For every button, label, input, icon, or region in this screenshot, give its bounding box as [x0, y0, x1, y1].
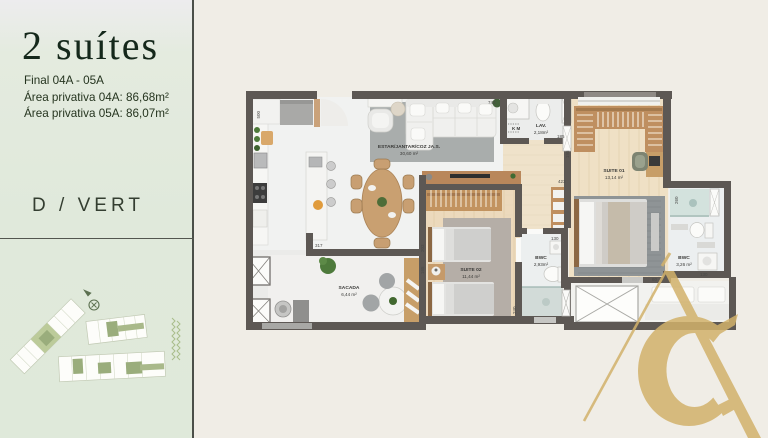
svg-text:2,18m²: 2,18m² [534, 130, 549, 135]
svg-text:11,44 m²: 11,44 m² [462, 274, 480, 279]
svg-text:60: 60 [652, 277, 658, 282]
svg-text:K M: K M [512, 126, 521, 131]
svg-text:SUITE 01: SUITE 01 [603, 168, 624, 174]
svg-text:2,93m²: 2,93m² [534, 262, 549, 267]
svg-text:165: 165 [420, 266, 425, 274]
svg-text:6,44 m²: 6,44 m² [341, 292, 357, 297]
svg-text:BWC: BWC [678, 255, 690, 261]
svg-text:130: 130 [700, 272, 708, 277]
svg-text:423: 423 [558, 179, 566, 184]
svg-text:317: 317 [315, 243, 323, 248]
svg-text:203: 203 [420, 244, 425, 252]
svg-text:SACADA: SACADA [339, 285, 360, 291]
svg-text:3,26 m²: 3,26 m² [676, 262, 692, 267]
svg-text:BWC: BWC [535, 255, 547, 261]
svg-text:ESTAR/JANTAR/COZ JA.S.: ESTAR/JANTAR/COZ JA.S. [378, 144, 441, 150]
svg-text:SUITE 02: SUITE 02 [460, 267, 481, 273]
svg-text:30,60 m²: 30,60 m² [400, 151, 419, 156]
svg-text:260: 260 [674, 196, 679, 204]
svg-text:LAV.: LAV. [536, 123, 547, 129]
svg-text:13,14 m²: 13,14 m² [605, 175, 624, 180]
svg-text:130: 130 [551, 236, 559, 241]
svg-text:185: 185 [557, 134, 565, 139]
svg-text:743: 743 [488, 100, 496, 105]
svg-text:240: 240 [512, 306, 517, 314]
svg-text:500: 500 [256, 111, 261, 119]
svg-text:195: 195 [565, 150, 570, 158]
